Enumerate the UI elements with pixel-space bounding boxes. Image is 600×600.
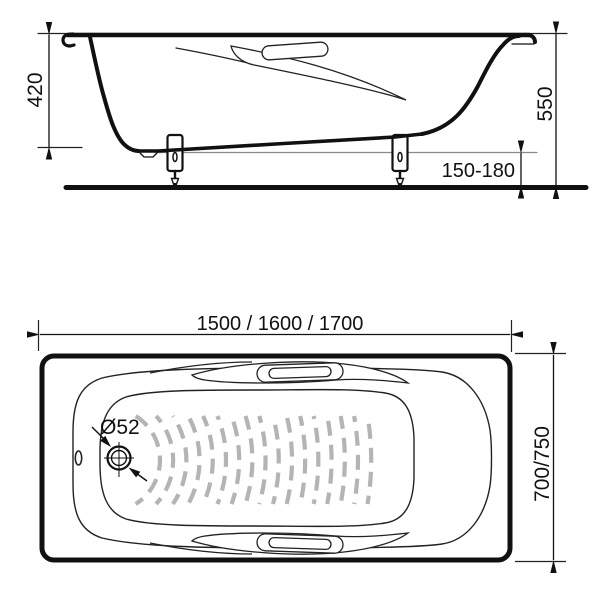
tub-right-wall	[422, 36, 519, 134]
side-handle-detail	[262, 42, 329, 61]
tub-left-wall	[90, 37, 138, 151]
drain-recess	[140, 153, 157, 157]
plan-length-label: 1500 / 1600 / 1700	[197, 313, 364, 335]
side-height-label: 550	[534, 86, 557, 121]
drawing-canvas: 420 550 150-180	[0, 0, 600, 600]
leg-bracket	[168, 135, 183, 187]
drain-diameter-label: Ø52	[100, 416, 140, 439]
side-floor-gap-label: 150-180	[442, 160, 515, 182]
plan-width-label: 700/750	[531, 426, 554, 502]
plan-view	[39, 320, 567, 562]
side-depth-label: 420	[24, 72, 47, 107]
leg-bracket-right	[393, 135, 408, 187]
bathtub-technical-drawing: 420 550 150-180	[0, 0, 600, 600]
tub-rim-right-cap	[519, 35, 535, 42]
